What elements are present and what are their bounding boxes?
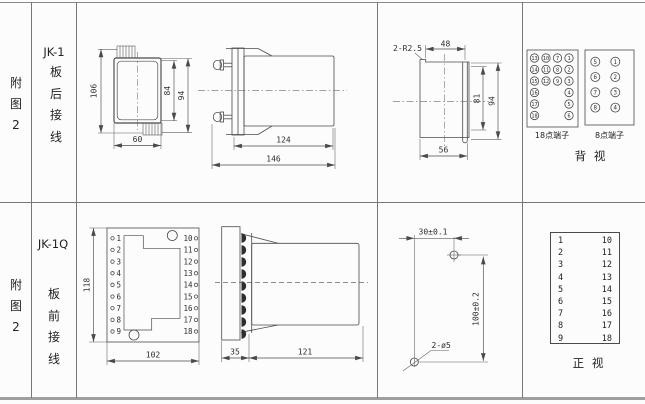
terminal-bump [242,317,247,326]
terminal-table-row: 110 [551,235,619,247]
terminal-bump [242,245,247,254]
terminal-table-row: 817 [551,320,619,332]
connector-block-top [117,46,135,58]
terminal-number: 9 [117,327,122,336]
pin-number: 4 [567,90,570,96]
terminal-table-row: 211 [551,247,619,259]
model-label-jk1: JK-1 [33,45,75,59]
dim-106: 106 [90,84,99,99]
left-terminal-column: 123456789 [111,234,122,336]
dim-118: 118 [83,278,92,293]
rear-view-label: 背 视 [559,148,623,164]
model-label-jk1q: JK-1Q [29,237,77,251]
terminal-number: 6 [117,292,122,301]
terminal-number: 12 [602,259,612,271]
terminal-18-pins: 131415161718101112789123456 [530,54,573,120]
terminal-dot [194,318,197,321]
pin-number: 15 [531,79,537,85]
terminal-bump [242,305,247,314]
terminal-number: 4 [117,269,122,278]
dim-corner-radius: 2-R2.5 [393,44,422,53]
terminal-dot [194,307,197,310]
dim-30: 30±0.1 [419,228,448,237]
pin-number: 5 [567,102,570,108]
dim-146: 146 [266,155,281,164]
terminal-dot [194,248,197,251]
figure-label-row2: 附 图 2 [4,279,28,333]
relay-side-view-drawing: 124 146 [195,40,350,172]
terminal-table-row: 918 [551,333,619,345]
terminal-number: 17 [183,316,192,325]
wiring-type-row2: 板 前 接 线 [42,288,66,365]
terminal-number: 8 [117,316,122,325]
terminal-number: 16 [183,304,193,313]
dim-60: 60 [133,135,143,144]
terminal-number: 17 [602,320,612,332]
pin-number: 7 [594,90,598,96]
row-divider [0,202,645,203]
figure-label-char: 2 [12,119,20,131]
pin-number: 3 [567,79,570,85]
panel-cutout-drawing: 2-R2.5 48 81 94 56 [385,40,510,172]
terminal-number: 14 [183,281,193,290]
wiring-char: 板 [50,66,62,78]
column-rule-3 [377,2,378,398]
terminal-number: 4 [558,272,563,284]
wiring-char: 后 [50,88,62,100]
pin-number: 9 [556,79,559,85]
terminal-number: 10 [183,234,193,243]
terminal-table-row: 615 [551,296,619,308]
right-terminal-column: 101112131415161718 [183,234,197,336]
terminal-table-row: 413 [551,272,619,284]
relay-side-view-front-wiring: 35 121 [215,225,375,370]
pin-number: 2 [614,75,618,81]
figure-label-char: 图 [10,300,22,312]
figure-label-row1: 附 图 2 [4,77,28,131]
wiring-char: 线 [50,131,62,143]
terminal-number: 11 [183,246,192,255]
terminal-number: 11 [602,247,612,259]
dim-84: 84 [163,86,172,96]
terminal-bump [242,257,247,266]
terminal-number: 18 [183,327,193,336]
relay-body [252,243,359,325]
pin-number: 18 [531,113,537,119]
terminal-8-label: 8点端子 [583,130,636,141]
terminal-dot [194,237,197,240]
pin-number: 8 [594,106,598,112]
dim-102: 102 [146,351,161,360]
pin-number: 11 [543,67,549,73]
front-plate [222,227,240,340]
terminal-dot [194,260,197,263]
terminal-number: 12 [183,257,192,266]
terminal-number: 15 [183,292,192,301]
terminal-number: 16 [602,308,612,320]
pin-number: 6 [567,113,570,119]
terminal-dot [194,283,197,286]
pin-number: 1 [567,56,570,62]
pin-number: 16 [531,90,537,96]
pin-number: 10 [543,56,549,62]
mounting-hole [129,330,139,340]
terminal-number: 15 [602,296,612,308]
pin-number: 6 [594,75,598,81]
wiring-char: 板 [48,288,60,300]
terminal-table-row: 716 [551,308,619,320]
terminal-number: 18 [602,333,612,345]
terminal-dot [194,295,197,298]
figure-label-char: 附 [10,77,22,89]
slot-notch [463,141,468,143]
dim-hole-note: 2-ø5 [432,341,451,350]
dim-121: 121 [298,348,313,357]
figure-sheet-page: 附 图 2 JK-1 板 后 接 线 附 图 2 JK-1Q 板 前 接 线 [0,0,645,404]
terminal-number: 1 [117,234,122,243]
terminal-dot [111,330,114,333]
terminal-number: 7 [117,304,122,313]
dim-56: 56 [439,146,449,155]
top-rule [0,2,645,3]
terminal-number: 6 [558,296,563,308]
terminal-bumps [242,233,247,338]
pin-number: 1 [614,60,618,66]
dim-94: 94 [177,91,186,101]
column-rule-1 [31,2,32,398]
dim-81: 81 [473,94,482,104]
pin-number: 14 [531,67,537,73]
terminal-bump [242,269,247,278]
connector-block-bottom [143,123,162,135]
terminal-number: 5 [558,284,563,296]
terminal-number: 5 [117,281,122,290]
terminal-18-label: 18点端子 [523,130,581,141]
relay-body [244,56,334,126]
figure-label-char: 图 [10,98,22,110]
terminal-number: 3 [558,259,563,271]
socket-rear-view-drawing: 106 84 94 60 [88,40,200,152]
pin-number: 12 [543,79,549,85]
pin-number: 4 [614,106,618,112]
terminal-dot [111,260,114,263]
terminal-bump [242,293,247,302]
terminal-dot [111,318,114,321]
terminal-table-row: 514 [551,284,619,296]
terminal-screw [213,60,232,70]
dim-100: 100±0.2 [472,292,481,326]
terminal-dot [111,237,114,240]
terminal-table-front-view: 110211312413514615716817918 [550,232,620,344]
pin-number: 17 [531,102,537,108]
bottom-rule [0,397,645,400]
terminal-table-row: 312 [551,259,619,271]
terminal-dot [111,295,114,298]
wiring-char: 接 [48,331,60,343]
terminal-number: 8 [558,320,563,332]
terminal-number: 13 [602,272,612,284]
terminal-bump [242,329,247,338]
pin-number: 13 [531,56,537,62]
terminal-number: 2 [558,247,563,259]
terminal-dot [111,307,114,310]
figure-label-char: 2 [12,321,20,333]
wiring-char: 线 [48,353,60,365]
pin-number: 3 [614,90,618,96]
front-view-label: 正 视 [556,355,622,371]
pin-number: 5 [594,60,598,66]
figure-label-char: 附 [10,279,22,291]
connector-profile [124,236,180,330]
front-view-drawing: 123456789 101112131415161718 118 102 [85,225,210,370]
terminal-number: 1 [558,235,563,247]
drilling-plan-drawing: 30±0.1 100±0.2 2-ø5 [390,225,510,375]
pin-number: 7 [556,56,559,62]
terminal-dot [194,272,197,275]
terminal-screw [213,112,232,122]
pin-number: 2 [567,67,570,73]
terminal-number: 2 [117,246,122,255]
terminal-number: 10 [602,235,612,247]
terminal-number: 3 [117,257,122,266]
pin-number: 8 [556,67,559,73]
terminal-number: 13 [183,269,192,278]
terminal-dot [111,248,114,251]
terminal-8-pins: 56781234 [591,57,620,112]
terminal-number: 14 [602,284,612,296]
dim-124: 124 [276,136,291,145]
dim-35: 35 [230,348,240,357]
wiring-char: 接 [50,109,62,121]
mounting-hole [167,231,177,241]
wiring-type-row1: 板 后 接 线 [44,66,68,143]
terminal-number: 9 [558,333,563,345]
terminal-dot [111,272,114,275]
terminal-number: 7 [558,308,563,320]
wiring-char: 前 [48,310,60,322]
terminal-dot [194,330,197,333]
terminal-dot [111,283,114,286]
terminal-block-8 [585,50,634,125]
dim-48: 48 [441,40,451,49]
terminal-blocks-rear-view: 131415161718101112789123456 56781234 [522,40,645,140]
dim-94-cutout: 94 [488,96,497,106]
column-rule-2 [76,2,77,398]
